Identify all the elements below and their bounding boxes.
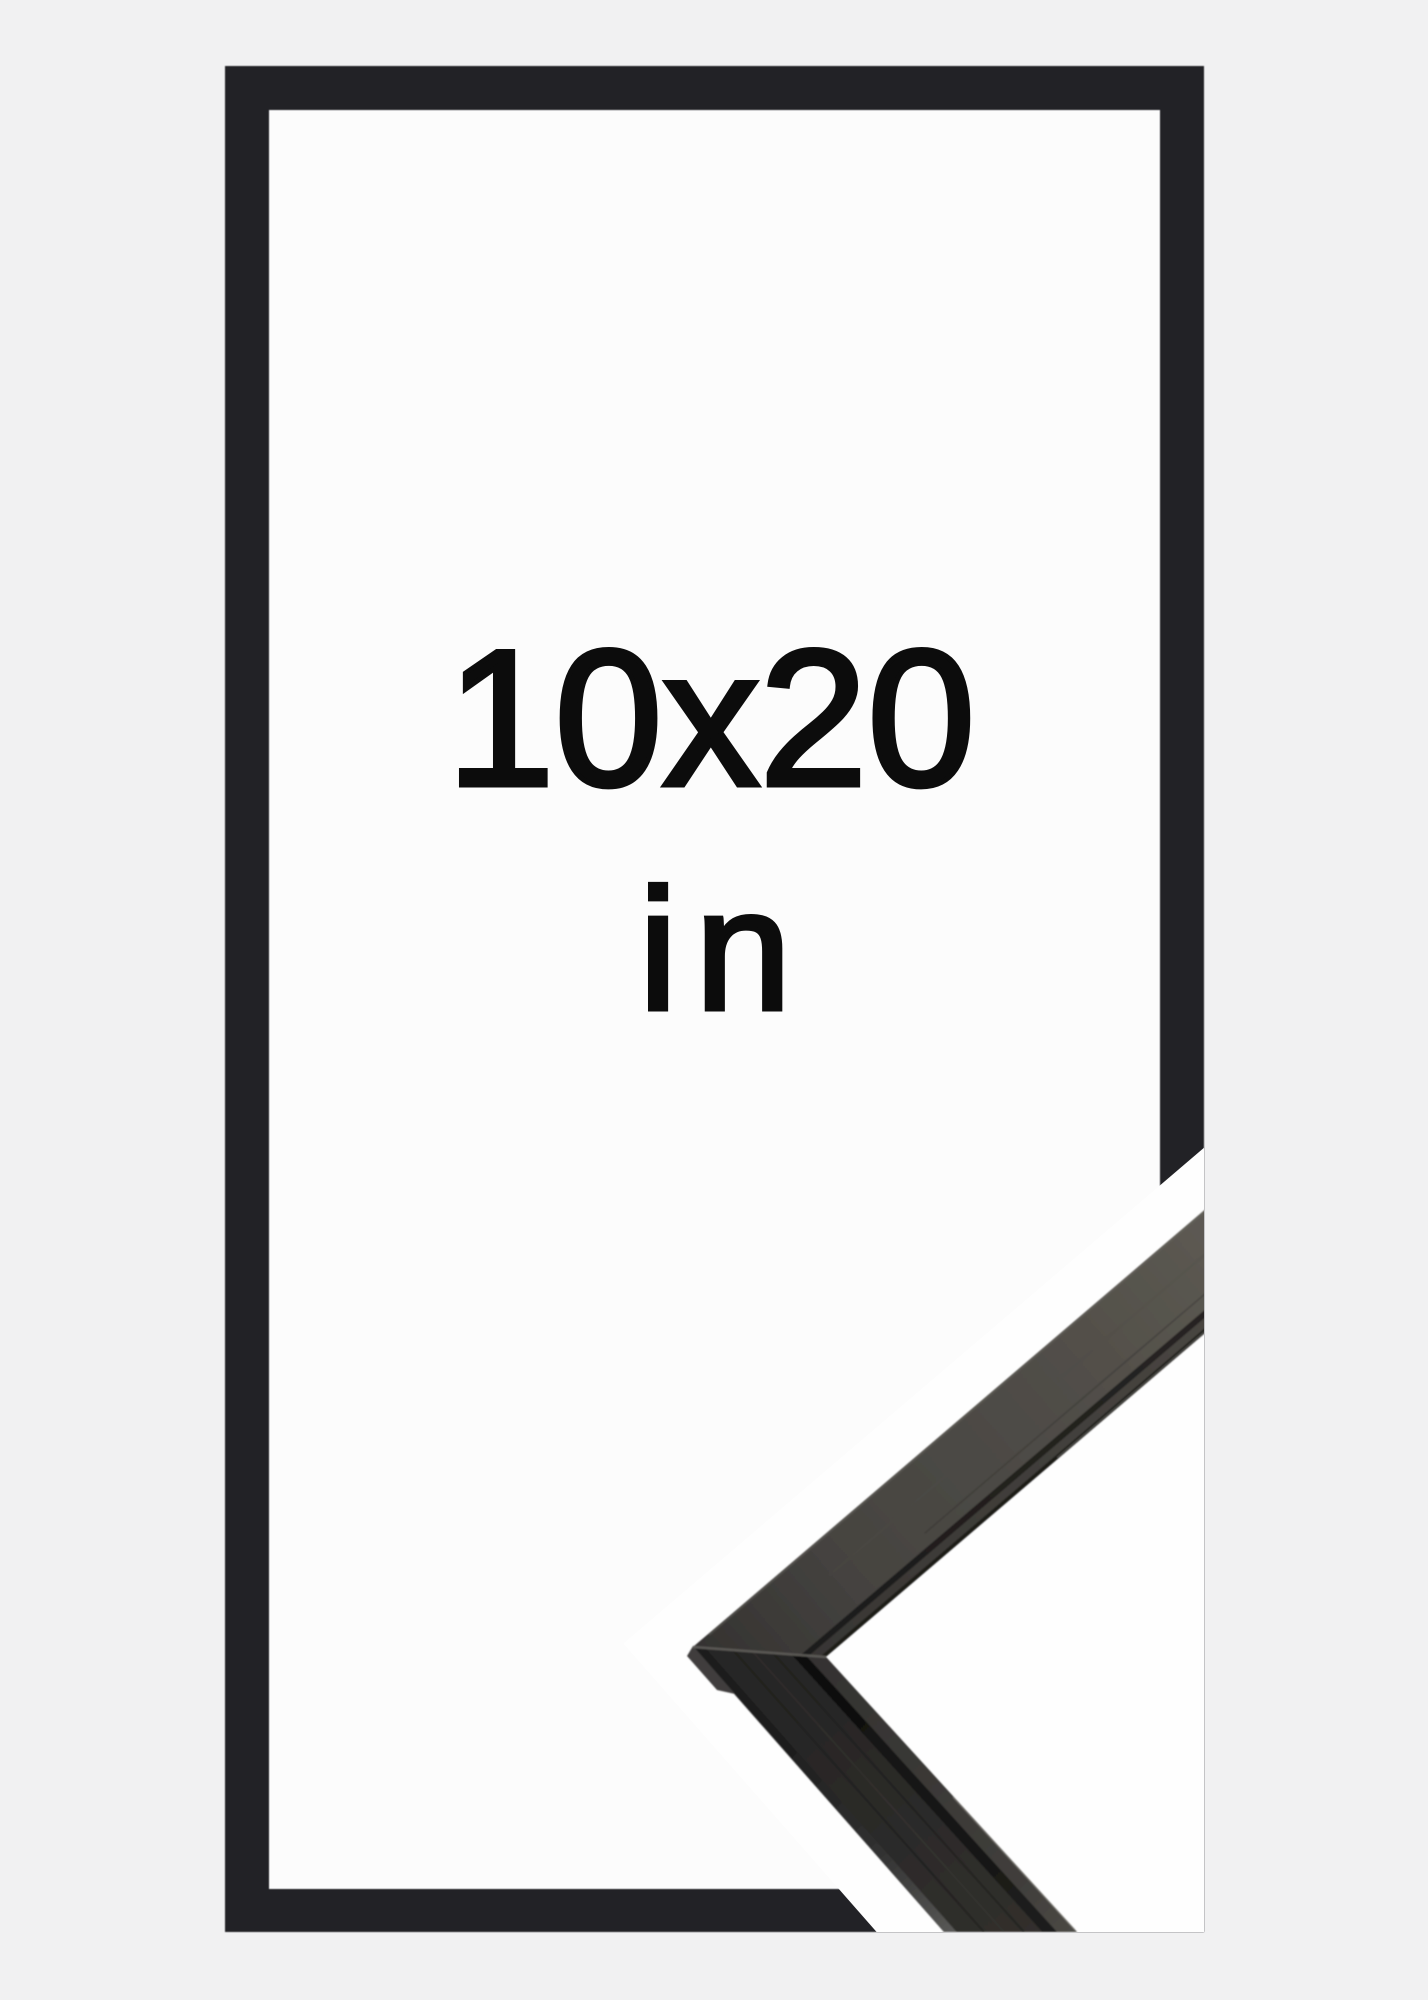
svg-text:10x20: 10x20 <box>447 610 976 827</box>
svg-text:in: in <box>639 854 791 1046</box>
